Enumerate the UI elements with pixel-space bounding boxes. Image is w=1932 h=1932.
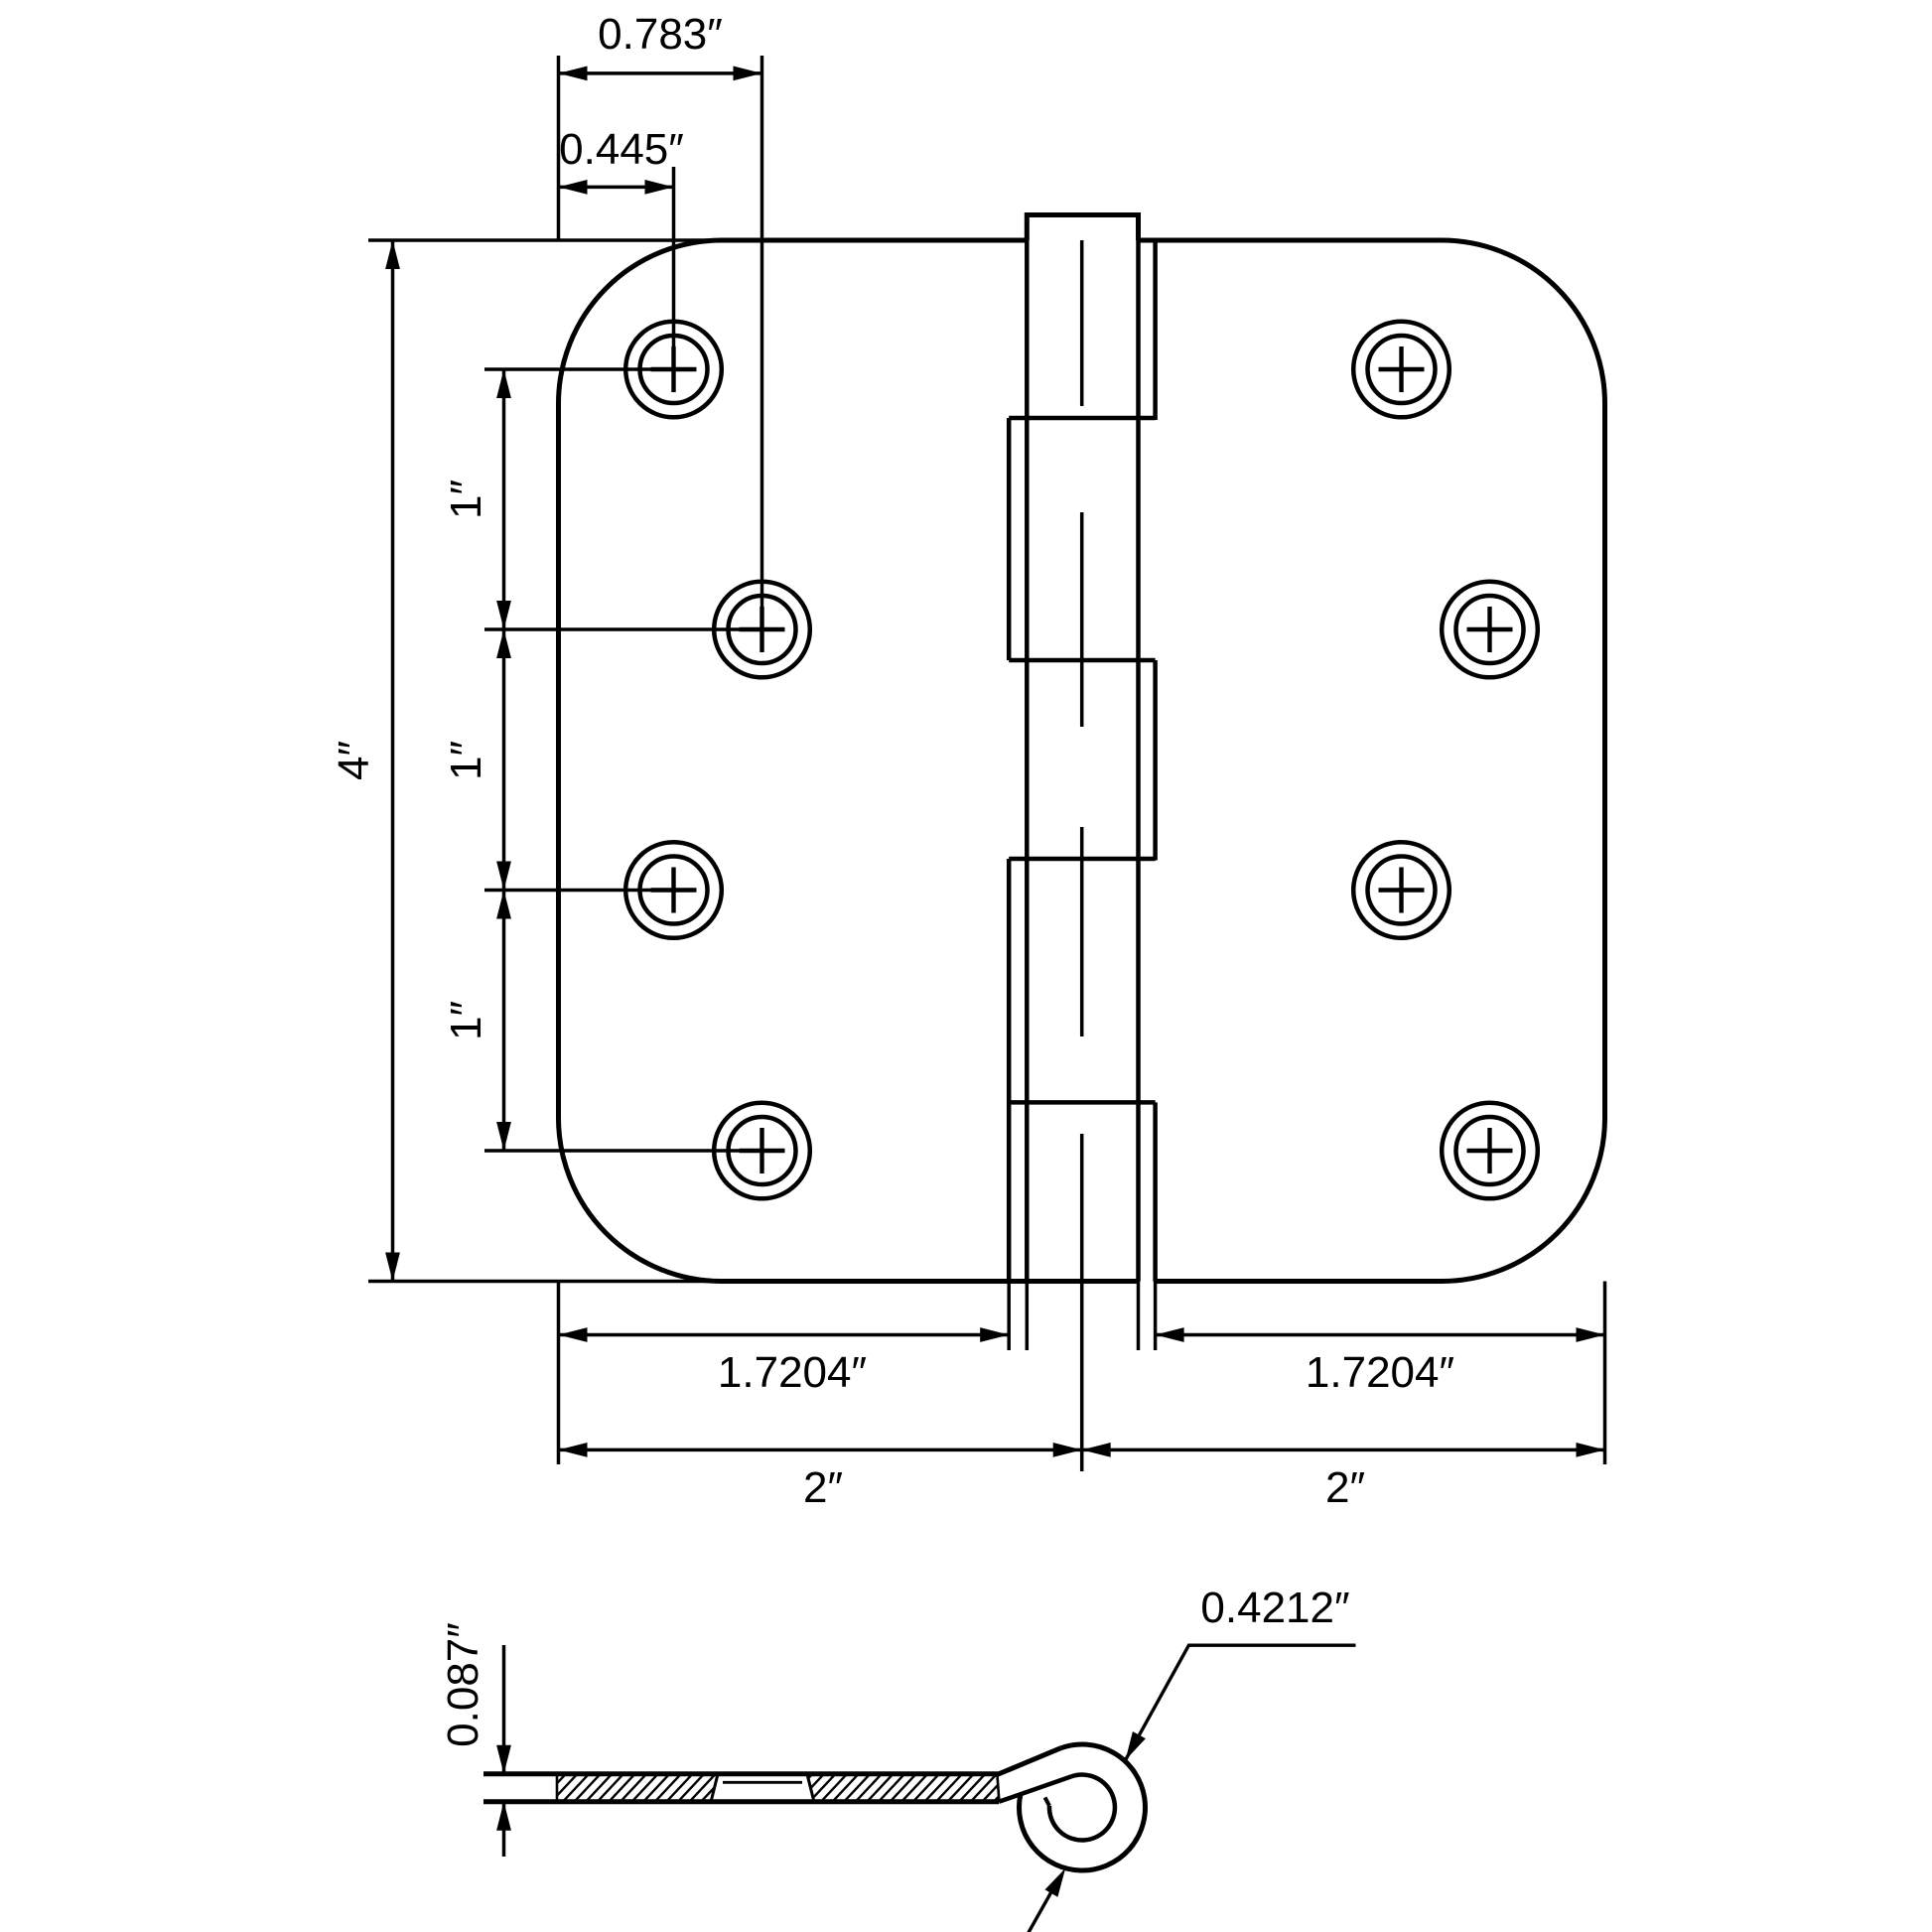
svg-text:1″: 1″	[442, 741, 490, 780]
svg-text:0.445″: 0.445″	[559, 125, 684, 174]
svg-text:0.783″: 0.783″	[598, 10, 723, 59]
svg-text:1″: 1″	[442, 1001, 490, 1040]
svg-text:2″: 2″	[1325, 1463, 1365, 1512]
svg-text:1.7204″: 1.7204″	[1306, 1348, 1454, 1397]
svg-text:4″: 4″	[330, 741, 378, 780]
svg-text:1″: 1″	[442, 480, 490, 519]
svg-text:0.087″: 0.087″	[439, 1622, 487, 1747]
svg-text:2″: 2″	[803, 1463, 843, 1512]
svg-text:0.4212″: 0.4212″	[1200, 1584, 1349, 1632]
svg-text:1.7204″: 1.7204″	[718, 1348, 867, 1397]
